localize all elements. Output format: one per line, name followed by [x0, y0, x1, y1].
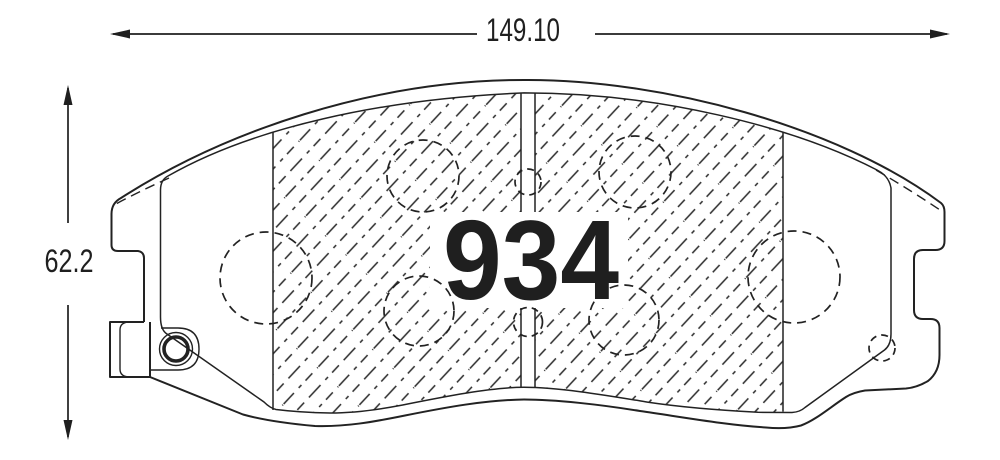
- svg-text:149.10: 149.10: [486, 12, 560, 48]
- svg-text:62.2: 62.2: [45, 243, 94, 279]
- svg-text:934: 934: [443, 197, 619, 323]
